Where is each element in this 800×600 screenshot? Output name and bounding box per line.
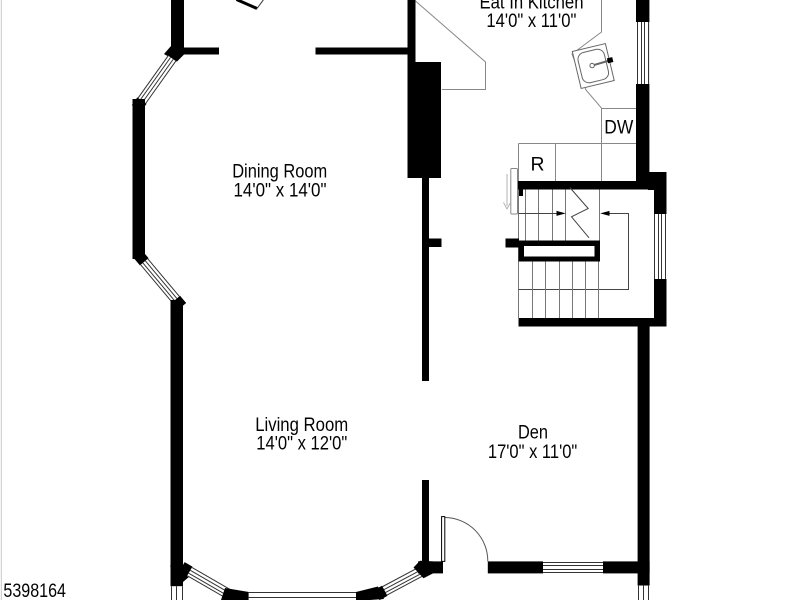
svg-text:5398164: 5398164	[3, 581, 66, 600]
svg-text:Den: Den	[518, 423, 548, 444]
svg-text:17'0" x 11'0": 17'0" x 11'0"	[488, 442, 577, 463]
svg-text:14'0" x 12'0": 14'0" x 12'0"	[256, 434, 347, 455]
svg-text:R: R	[531, 154, 545, 175]
svg-text:14'0" x 14'0": 14'0" x 14'0"	[234, 180, 327, 201]
svg-text:14'0" x 11'0": 14'0" x 11'0"	[486, 11, 576, 32]
svg-text:DW: DW	[604, 117, 633, 138]
